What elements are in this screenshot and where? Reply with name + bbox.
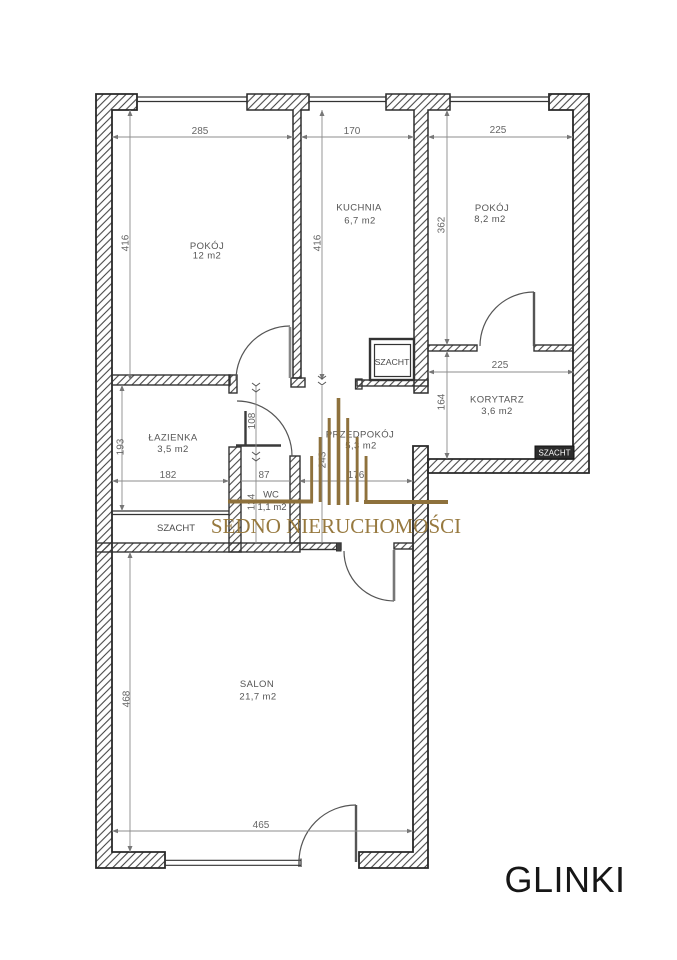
svg-text:465: 465 — [253, 820, 270, 831]
svg-text:PRZEDPOKÓJ: PRZEDPOKÓJ — [326, 430, 394, 441]
svg-text:SEDNO NIERUCHOMOŚCI: SEDNO NIERUCHOMOŚCI — [211, 514, 461, 538]
svg-text:21,7 m2: 21,7 m2 — [239, 692, 276, 703]
svg-text:225: 225 — [490, 125, 507, 136]
svg-text:87: 87 — [258, 470, 270, 481]
svg-text:6,7 m2: 6,7 m2 — [344, 216, 375, 227]
svg-text:468: 468 — [122, 690, 133, 707]
svg-text:362: 362 — [437, 216, 448, 233]
svg-text:193: 193 — [116, 438, 127, 455]
svg-text:SZACHT: SZACHT — [157, 523, 195, 534]
svg-text:164: 164 — [437, 393, 448, 410]
svg-text:3,5 m2: 3,5 m2 — [157, 444, 188, 455]
svg-text:170: 170 — [344, 126, 361, 137]
svg-text:WC: WC — [263, 490, 279, 501]
svg-text:8,2 m2: 8,2 m2 — [474, 214, 505, 225]
svg-text:416: 416 — [313, 234, 324, 251]
svg-text:SZACHT: SZACHT — [375, 357, 410, 367]
svg-text:SZACHT: SZACHT — [539, 449, 571, 458]
svg-text:225: 225 — [492, 360, 509, 371]
svg-text:KUCHNIA: KUCHNIA — [336, 203, 382, 214]
svg-text:108: 108 — [247, 412, 258, 429]
svg-text:12 m2: 12 m2 — [193, 251, 221, 262]
svg-text:5,3 m2: 5,3 m2 — [345, 441, 376, 452]
svg-text:SALON: SALON — [240, 679, 274, 690]
svg-text:3,6 m2: 3,6 m2 — [481, 406, 512, 417]
svg-text:285: 285 — [192, 126, 209, 137]
svg-text:POKÓJ: POKÓJ — [475, 203, 509, 214]
svg-text:GLINKI: GLINKI — [504, 859, 625, 900]
svg-text:ŁAZIENKA: ŁAZIENKA — [148, 433, 197, 444]
svg-text:1,1 m2: 1,1 m2 — [257, 502, 286, 513]
svg-text:182: 182 — [160, 470, 177, 481]
svg-text:416: 416 — [121, 234, 132, 251]
svg-text:KORYTARZ: KORYTARZ — [470, 395, 524, 406]
